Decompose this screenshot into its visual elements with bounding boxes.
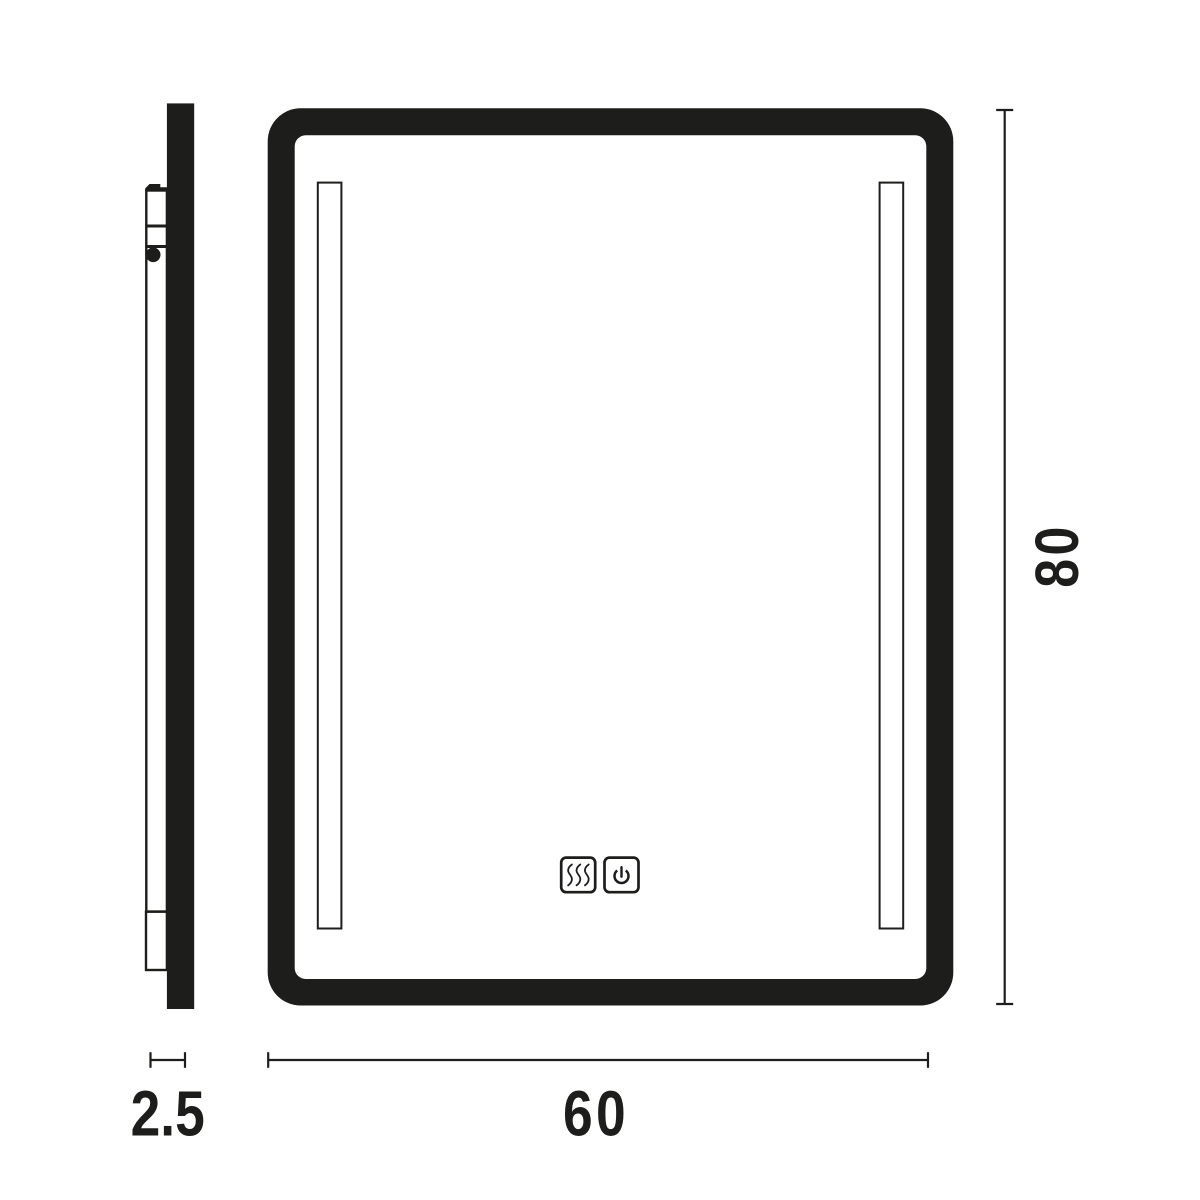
svg-text:60: 60 [563,1079,629,1150]
svg-text:80: 80 [1023,523,1092,588]
svg-text:2.5: 2.5 [131,1079,205,1150]
